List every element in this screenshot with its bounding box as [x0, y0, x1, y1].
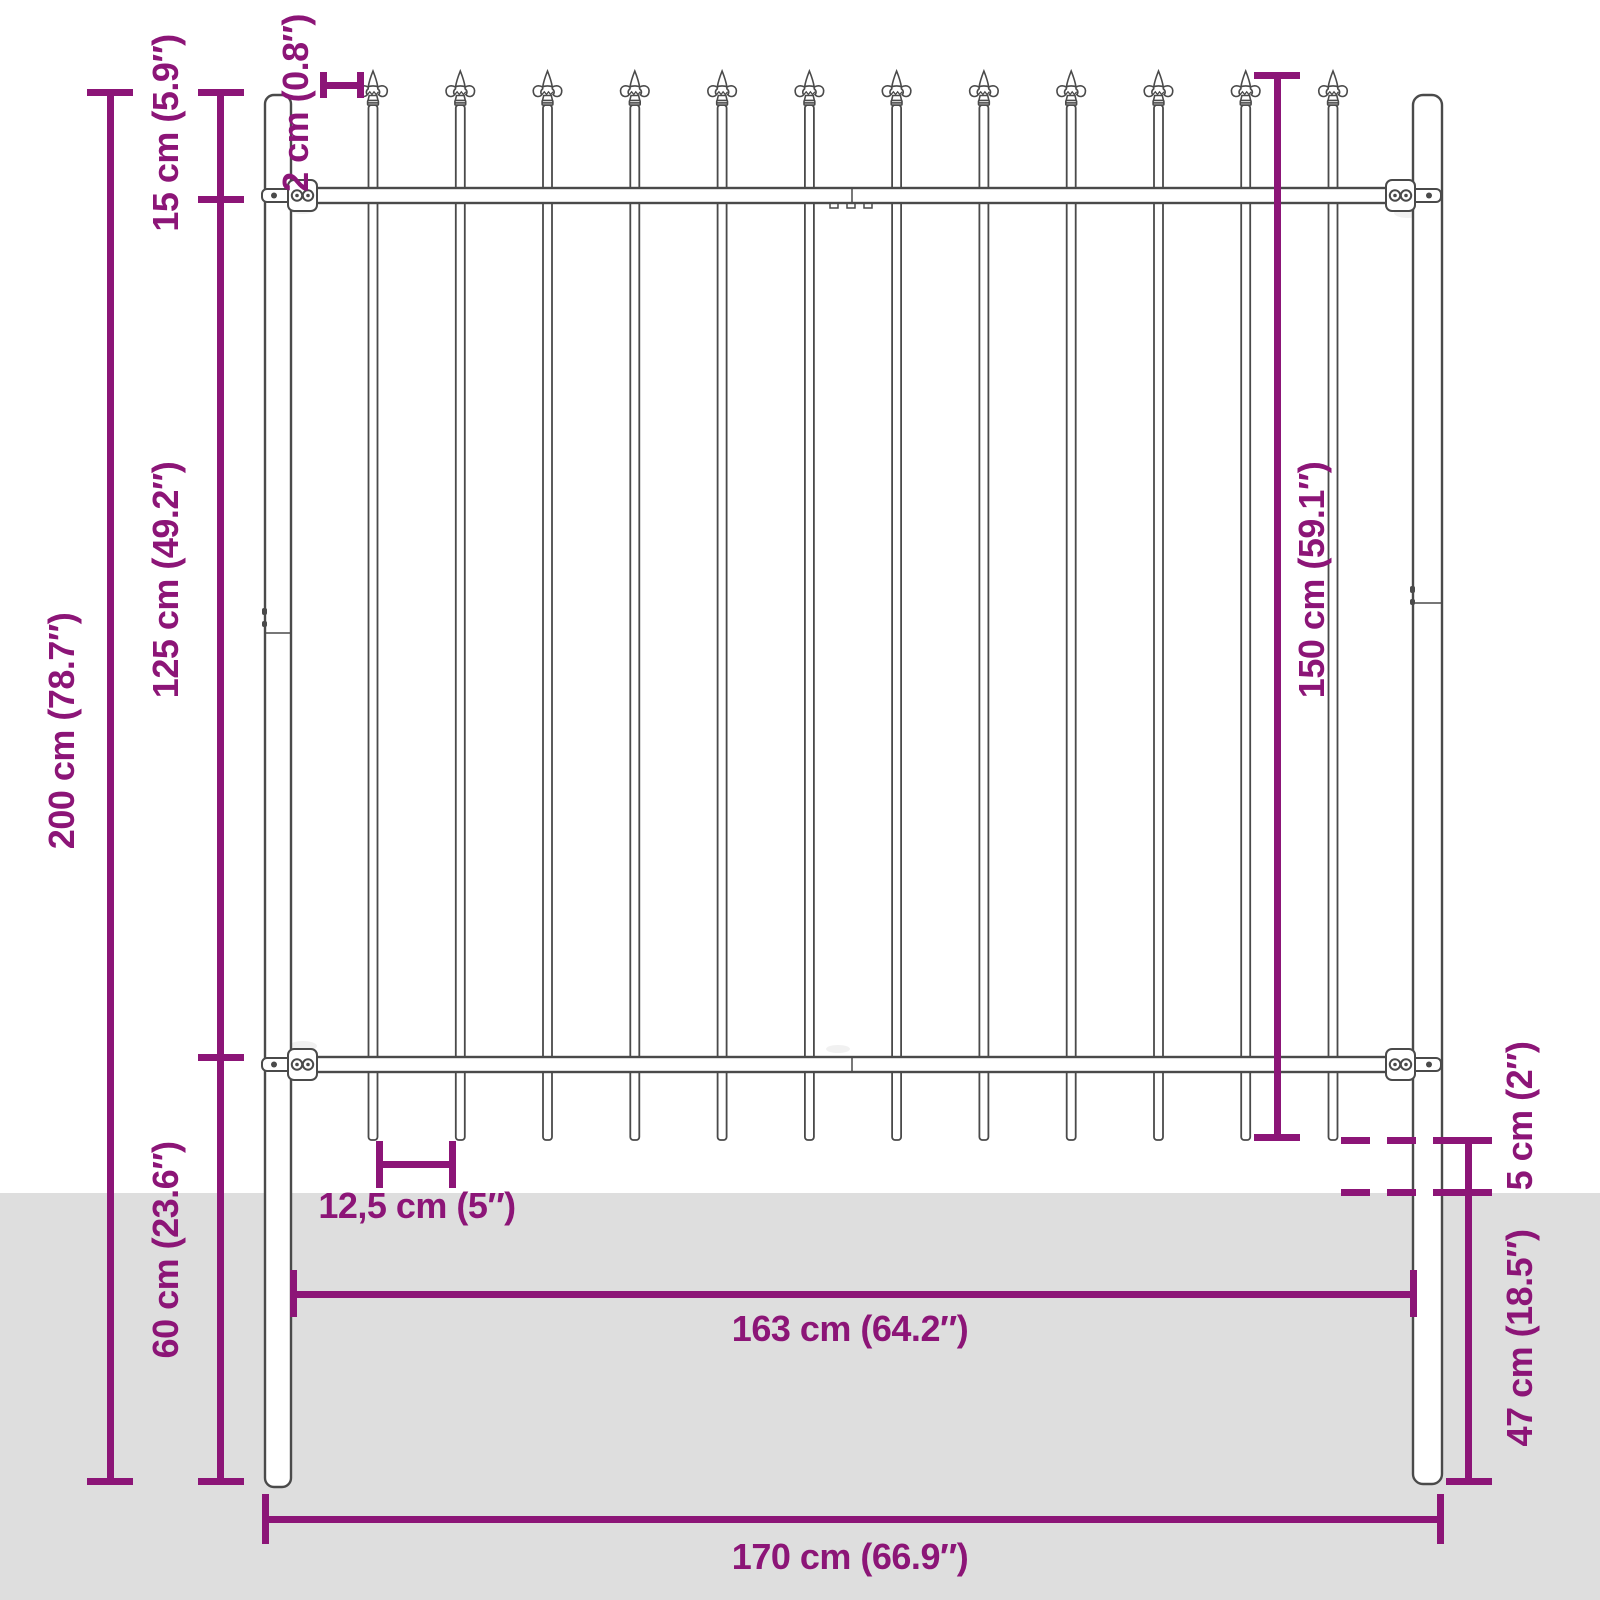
dim-163-tick-right	[1410, 1270, 1417, 1317]
dim-5-tick-top	[1446, 1137, 1492, 1144]
dim-47-label: 47 cm (18.5″)	[1499, 1230, 1541, 1447]
dim-163-label: 163 cm (64.2″)	[732, 1308, 968, 1350]
fence-illustration	[0, 0, 1600, 1600]
right-post	[1413, 95, 1442, 1484]
dim-150-tick-bottom	[1254, 1134, 1300, 1141]
dim-150-line	[1274, 75, 1281, 1140]
dim-125-label: 125 cm (49.2″)	[145, 462, 187, 698]
dim-200-tick-top	[87, 89, 133, 96]
dim-5-label: 5 cm (2″)	[1499, 1042, 1541, 1191]
rail-brackets	[262, 180, 1441, 1080]
dim-60-label: 60 cm (23.6″)	[145, 1142, 187, 1359]
dim-150-tick-top	[1254, 72, 1300, 79]
dim-200-label: 200 cm (78.7″)	[41, 613, 83, 849]
dim-170-label: 170 cm (66.9″)	[732, 1536, 968, 1578]
dim-5-tick-bottom	[1446, 1189, 1492, 1196]
dim-2-line	[320, 82, 364, 89]
fence-dimension-diagram: 200 cm (78.7″) 15 cm (5.9″) 125 cm (49.2…	[0, 0, 1600, 1600]
dim-15-label: 15 cm (5.9″)	[145, 34, 187, 231]
dim-segments-tick-3	[198, 1054, 244, 1061]
dim-segments-tick-4	[198, 1478, 244, 1485]
dim-163-tick-left	[290, 1270, 297, 1317]
dim-47-tick-bottom	[1446, 1478, 1492, 1485]
dim-segments-tick-1	[198, 89, 244, 96]
dim-12-5-label: 12,5 cm (5″)	[318, 1185, 515, 1227]
dim-200-tick-bottom	[87, 1478, 133, 1485]
dim-170-tick-left	[262, 1494, 269, 1544]
dim-2-label: 2 cm (0.8″)	[275, 14, 317, 192]
dim-170-line	[265, 1516, 1441, 1523]
dim-segments-line	[217, 92, 224, 1484]
dim-segments-tick-2	[198, 196, 244, 203]
dim-163-line	[293, 1291, 1413, 1298]
dim-150-label: 150 cm (59.1″)	[1291, 462, 1333, 698]
dim-170-tick-right	[1437, 1494, 1444, 1544]
dim-200-line	[107, 92, 114, 1484]
fence-bars	[359, 71, 1348, 1140]
dim-12-5-line	[376, 1161, 456, 1168]
left-post	[265, 95, 291, 1487]
